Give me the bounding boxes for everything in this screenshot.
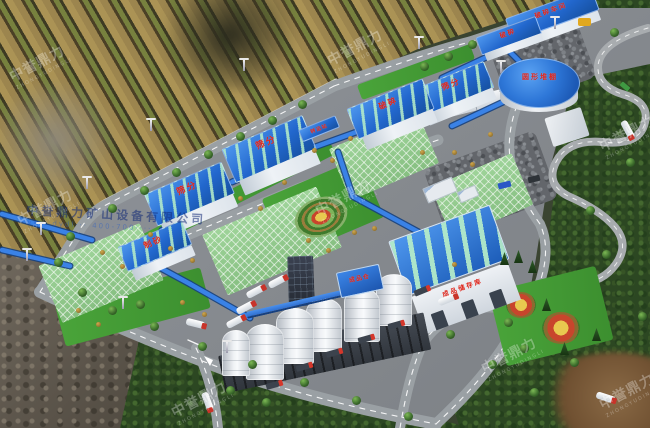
shrub	[352, 230, 357, 235]
shrub	[330, 158, 335, 163]
shrub	[488, 132, 493, 137]
tree	[602, 250, 611, 259]
tree	[298, 100, 307, 109]
wheel-loader	[578, 18, 591, 26]
tree	[638, 312, 647, 321]
tree	[108, 306, 117, 315]
tree	[586, 206, 595, 215]
tree	[570, 358, 579, 367]
tree	[198, 342, 207, 351]
tree	[226, 386, 235, 395]
shrub	[148, 232, 153, 237]
shrub	[202, 312, 207, 317]
building-label: 成品仓	[338, 272, 380, 287]
shrub	[96, 322, 101, 327]
shrub	[372, 226, 377, 231]
tree	[268, 116, 277, 125]
street-light	[150, 118, 152, 131]
silo	[246, 324, 284, 380]
tree	[140, 186, 149, 195]
dome-roof	[498, 58, 580, 108]
tree	[262, 398, 271, 407]
shrub	[76, 308, 81, 313]
shrub	[470, 162, 475, 167]
tree	[300, 378, 309, 387]
tree	[404, 412, 413, 421]
tree	[352, 396, 361, 405]
street-light	[500, 60, 502, 73]
tree	[150, 322, 159, 331]
shrub	[238, 196, 243, 201]
building-dome-stockpile: 圆形堆棚	[498, 58, 582, 118]
street-light	[122, 296, 124, 309]
tree	[610, 28, 619, 37]
tree	[172, 168, 181, 177]
shrub	[420, 150, 425, 155]
shrub	[306, 238, 311, 243]
silo-small	[222, 330, 250, 376]
tree	[78, 288, 87, 297]
tree	[504, 318, 513, 327]
shrub	[168, 246, 173, 251]
tree	[236, 132, 245, 141]
tree	[488, 360, 497, 369]
shrub	[282, 180, 287, 185]
shrub	[452, 150, 457, 155]
tree	[530, 388, 539, 397]
shrub	[348, 136, 353, 141]
shrub	[312, 148, 317, 153]
shrub	[100, 250, 105, 255]
street-light	[26, 248, 28, 261]
tree	[54, 258, 63, 267]
tree	[108, 204, 117, 213]
street-light	[418, 36, 420, 49]
tree	[66, 232, 75, 241]
tree	[446, 330, 455, 339]
tree	[468, 40, 477, 49]
tree	[420, 62, 429, 71]
street-light	[226, 340, 228, 353]
tree	[204, 150, 213, 159]
street-light	[554, 16, 556, 29]
tree	[444, 52, 453, 61]
building-label: 圆形堆棚	[498, 74, 582, 81]
shrub	[180, 300, 185, 305]
shrub	[258, 206, 263, 211]
street-light	[86, 176, 88, 189]
tree	[136, 300, 145, 309]
shrub	[326, 248, 331, 253]
shrub	[120, 264, 125, 269]
plant-3d-rendering: 破碎车间 破碎 筛分 破碎 筛分 筛分 制砂 转运站 圆形堆棚	[0, 0, 650, 428]
tree	[520, 344, 529, 353]
street-light	[40, 222, 42, 235]
shrub	[190, 258, 195, 263]
street-light	[243, 58, 245, 71]
shrub	[452, 262, 457, 267]
tree	[248, 360, 257, 369]
tree	[626, 158, 635, 167]
